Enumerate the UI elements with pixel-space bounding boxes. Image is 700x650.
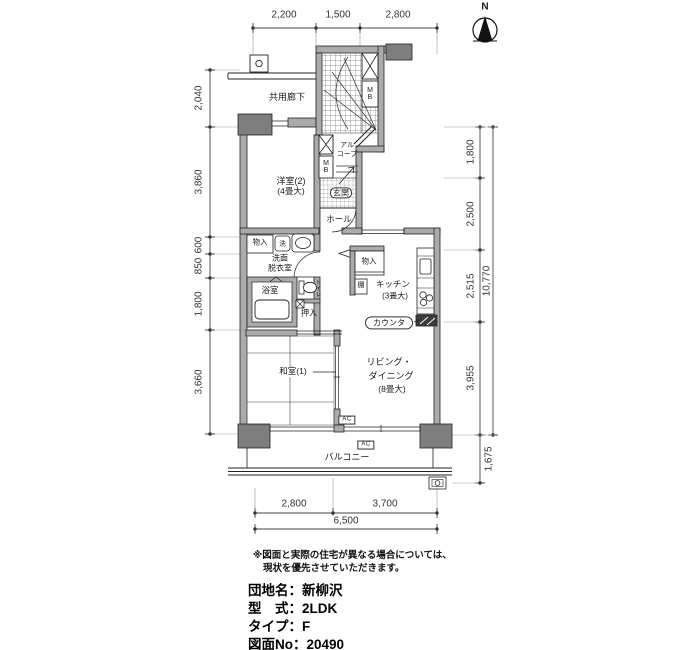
dim-left-1: 2,040 bbox=[194, 85, 205, 110]
sliding-doors-living bbox=[334, 346, 340, 409]
floor-plan-page: N 2,200 1,500 2,800 2,040 3,860 600 850 … bbox=[0, 0, 700, 650]
sanitary-area bbox=[247, 234, 320, 334]
dim-left-3: 600 bbox=[194, 237, 205, 254]
tatami-lines bbox=[247, 336, 336, 425]
common-corridor bbox=[228, 55, 318, 79]
meter-box-label-2: MB bbox=[322, 160, 331, 174]
label-counter: カウンタ bbox=[365, 316, 413, 329]
room-label-toilet: トイレ bbox=[314, 279, 320, 297]
label-storage-left: 物入 bbox=[253, 239, 268, 248]
label-alcove-2: コーブ bbox=[337, 151, 358, 159]
meter-box-label-1: MB bbox=[366, 87, 375, 101]
label-shelf: 棚 bbox=[358, 282, 365, 290]
label-storage-right: 物入 bbox=[362, 258, 377, 267]
dim-bottom-total: 6,500 bbox=[331, 516, 360, 527]
room-label-hall: ホール bbox=[326, 215, 352, 225]
room-label-kitchen-size: (3畳大) bbox=[382, 291, 408, 300]
dim-right-1: 1,800 bbox=[466, 139, 477, 164]
info-plan-type: タイプ：F bbox=[248, 615, 310, 635]
dim-top-3: 2,800 bbox=[385, 10, 410, 21]
dim-left-4: 850 bbox=[194, 258, 205, 275]
room-label-balcony: バルコニー bbox=[325, 452, 370, 462]
room-label-living-2: ダイニング bbox=[368, 371, 413, 381]
room-label-corridor: 共用廊下 bbox=[269, 92, 305, 102]
label-closet: 押入 bbox=[301, 308, 317, 317]
label-washer: 洗 bbox=[279, 240, 286, 247]
north-compass-icon bbox=[473, 16, 497, 42]
north-label: N bbox=[481, 1, 488, 13]
info-drawing-number: 図面No：20490 bbox=[248, 633, 344, 650]
dim-top-2: 1,500 bbox=[325, 10, 350, 21]
label-alcove-1: アル bbox=[340, 142, 354, 150]
room-label-living-size: (8畳大) bbox=[378, 385, 405, 395]
hall-doors bbox=[320, 249, 352, 334]
room-label-entrance: 玄関 bbox=[330, 187, 352, 198]
room-label-japanese-room: 和室(1) bbox=[278, 367, 307, 377]
info-unit-type: 型 式：2LDK bbox=[248, 597, 337, 617]
room-label-washroom-1: 洗面 bbox=[272, 253, 288, 262]
dim-left-2: 3,860 bbox=[194, 169, 205, 194]
dim-bottom-2: 3,700 bbox=[372, 499, 397, 510]
dim-top-1: 2,200 bbox=[271, 10, 296, 21]
disclaimer-line-2: 現状を優先させていただきます。 bbox=[263, 560, 405, 574]
room-label-bath: 浴室 bbox=[261, 286, 278, 296]
room-label-kitchen: キッチン bbox=[376, 280, 410, 290]
room-label-washroom-2: 脱衣室 bbox=[268, 263, 292, 272]
dim-right-total: 10,770 bbox=[482, 266, 493, 297]
room-label-western-room: 洋室(2) bbox=[277, 176, 306, 186]
disclaimer-line-1: ※図面と実際の住宅が異なる場合については、 bbox=[253, 547, 452, 561]
dim-bottom-1: 2,800 bbox=[281, 499, 306, 510]
info-estate-name: 団地名：新柳沢 bbox=[248, 579, 343, 599]
dim-balcony-depth: 1,675 bbox=[484, 446, 495, 471]
dim-left-6: 3,660 bbox=[194, 369, 205, 394]
ac-unit-label-1: AC bbox=[338, 416, 355, 425]
dim-left-5: 1,800 bbox=[194, 291, 205, 316]
room-label-western-room-size: (4畳大) bbox=[277, 187, 304, 197]
room-label-living-1: リビング・ bbox=[366, 357, 411, 367]
dim-right-4: 3,955 bbox=[466, 365, 477, 390]
dim-right-2: 2,500 bbox=[466, 201, 477, 226]
ac-unit-label-2: AC bbox=[357, 441, 374, 450]
dim-right-3: 2,515 bbox=[466, 273, 477, 298]
